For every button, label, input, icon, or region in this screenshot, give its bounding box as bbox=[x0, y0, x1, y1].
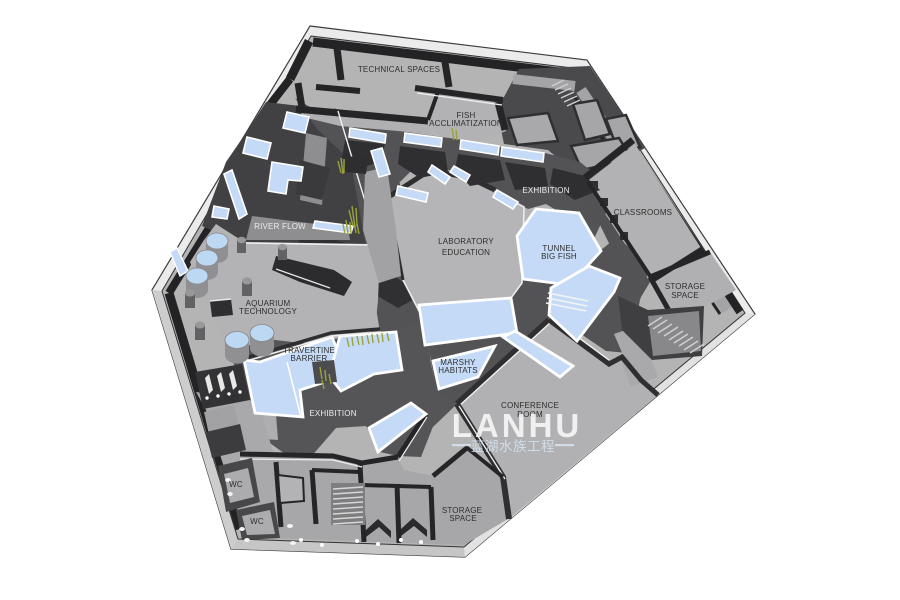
svg-text:SPACE: SPACE bbox=[449, 514, 477, 523]
svg-text:WC: WC bbox=[229, 480, 243, 489]
svg-text:EDUCATION: EDUCATION bbox=[442, 248, 490, 257]
svg-text:RIVER FLOW: RIVER FLOW bbox=[254, 222, 306, 231]
svg-text:ACCLIMATIZATION: ACCLIMATIZATION bbox=[429, 119, 503, 128]
svg-text:EXHIBITION: EXHIBITION bbox=[309, 409, 356, 418]
svg-text:SPACE: SPACE bbox=[671, 291, 699, 300]
svg-text:BARRIER: BARRIER bbox=[291, 354, 328, 363]
svg-text:WC: WC bbox=[224, 394, 238, 403]
svg-text:WC: WC bbox=[250, 517, 264, 526]
svg-text:STORAGE: STORAGE bbox=[665, 282, 705, 291]
svg-text:蓝湖水族工程: 蓝湖水族工程 bbox=[471, 439, 555, 454]
svg-text:CLASSROOMS: CLASSROOMS bbox=[614, 208, 672, 217]
svg-text:EXHIBITION: EXHIBITION bbox=[522, 186, 569, 195]
svg-text:TECHNOLOGY: TECHNOLOGY bbox=[239, 307, 297, 316]
svg-text:HABITATS: HABITATS bbox=[438, 366, 478, 375]
svg-text:BIG FISH: BIG FISH bbox=[541, 252, 577, 261]
svg-text:LABORATORY: LABORATORY bbox=[438, 237, 494, 246]
svg-text:TECHNICAL SPACES: TECHNICAL SPACES bbox=[358, 65, 440, 74]
